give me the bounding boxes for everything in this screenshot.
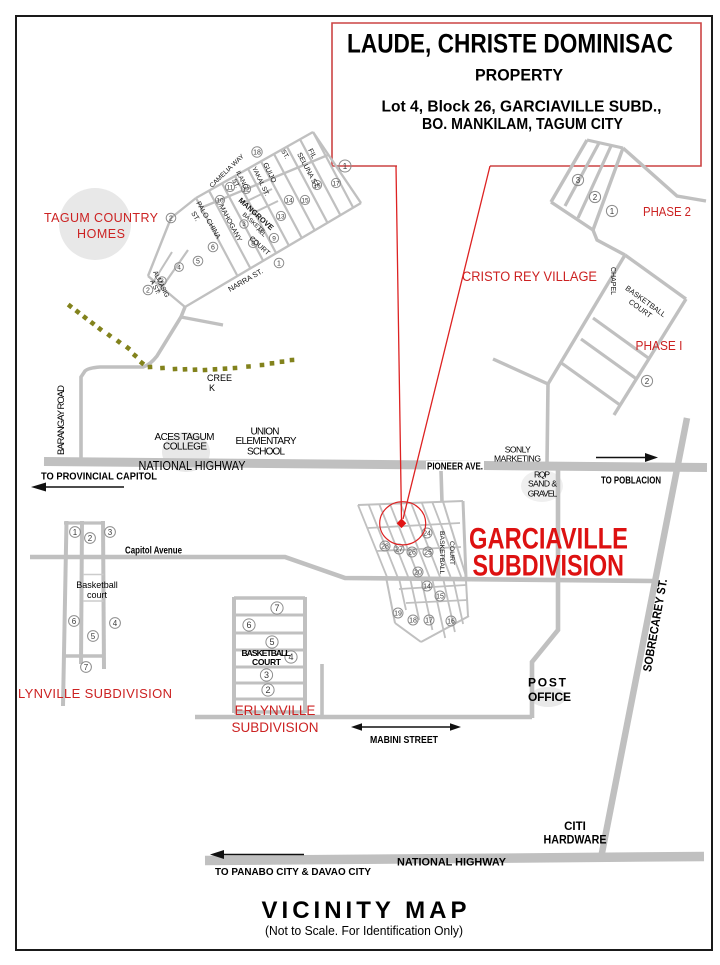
svg-text:7: 7 <box>274 603 279 613</box>
svg-text:19: 19 <box>394 611 402 618</box>
svg-text:5: 5 <box>91 632 96 641</box>
svg-text:HOMES: HOMES <box>77 227 125 241</box>
svg-text:9: 9 <box>272 235 276 242</box>
svg-text:SAND &: SAND & <box>528 479 557 489</box>
svg-text:COURT: COURT <box>252 657 282 667</box>
svg-text:14: 14 <box>285 197 293 204</box>
svg-text:28: 28 <box>381 544 389 551</box>
svg-text:LYNVILLE SUBDIVISION: LYNVILLE SUBDIVISION <box>18 686 172 701</box>
svg-text:BO. MANKILAM, TAGUM CITY: BO. MANKILAM, TAGUM CITY <box>422 116 623 133</box>
svg-text:K: K <box>209 383 215 393</box>
svg-text:Capitol Avenue: Capitol Avenue <box>125 546 182 557</box>
svg-text:15: 15 <box>436 594 444 601</box>
svg-text:SUBDIVISION: SUBDIVISION <box>473 550 625 583</box>
svg-text:15: 15 <box>301 197 309 204</box>
svg-text:TO POBLACION: TO POBLACION <box>601 475 661 487</box>
svg-text:6: 6 <box>72 617 77 626</box>
svg-text:SUBDIVISION: SUBDIVISION <box>231 720 318 735</box>
svg-text:16: 16 <box>447 619 455 626</box>
svg-text:ELEMENTARY: ELEMENTARY <box>236 436 297 447</box>
svg-text:BARANGAY ROAD: BARANGAY ROAD <box>56 385 67 455</box>
svg-text:4: 4 <box>113 619 118 628</box>
svg-text:17: 17 <box>332 180 340 187</box>
svg-text:OFFICE: OFFICE <box>528 690 571 704</box>
svg-text:1: 1 <box>610 207 615 216</box>
svg-text:1: 1 <box>73 528 78 537</box>
svg-text:BASKETBALL: BASKETBALL <box>438 531 445 575</box>
svg-text:3: 3 <box>264 670 269 680</box>
svg-text:Lot 4, Block 26, GARCIAVILLE S: Lot 4, Block 26, GARCIAVILLE SUBD., <box>382 99 662 116</box>
svg-text:5: 5 <box>269 637 274 647</box>
svg-text:2: 2 <box>169 216 173 223</box>
svg-text:MARKETING: MARKETING <box>494 454 541 464</box>
svg-text:TAGUM COUNTRY: TAGUM COUNTRY <box>44 211 159 225</box>
svg-text:ERLYNVILLE: ERLYNVILLE <box>235 703 316 718</box>
svg-text:CREE: CREE <box>207 373 232 383</box>
svg-text:4: 4 <box>177 264 181 271</box>
svg-text:TO PANABO CITY & DAVAO CITY: TO PANABO CITY & DAVAO CITY <box>215 867 371 878</box>
svg-text:SCHOOL: SCHOOL <box>247 447 285 458</box>
svg-text:PHASE I: PHASE I <box>636 339 683 353</box>
svg-text:18: 18 <box>409 618 417 625</box>
svg-text:CRISTO REY VILLAGE: CRISTO REY VILLAGE <box>462 269 597 284</box>
svg-text:CITI: CITI <box>564 821 586 833</box>
svg-text:1: 1 <box>343 162 348 171</box>
svg-text:3: 3 <box>108 528 113 537</box>
svg-text:3: 3 <box>576 176 581 185</box>
svg-text:20: 20 <box>414 570 422 577</box>
svg-text:2: 2 <box>146 288 150 295</box>
svg-text:TO PROVINCIAL CAPITOL: TO PROVINCIAL CAPITOL <box>41 471 158 483</box>
svg-text:2: 2 <box>645 377 650 386</box>
svg-text:2: 2 <box>593 193 598 202</box>
svg-text:17: 17 <box>425 618 433 625</box>
svg-text:2: 2 <box>265 685 270 695</box>
svg-text:PHASE 2: PHASE 2 <box>643 205 691 219</box>
svg-text:2: 2 <box>88 534 93 543</box>
svg-text:PROPERTY: PROPERTY <box>475 67 563 85</box>
svg-text:court: court <box>87 590 108 600</box>
svg-text:HARDWARE: HARDWARE <box>544 835 607 847</box>
svg-text:13: 13 <box>277 213 285 220</box>
svg-text:NATIONAL HIGHWAY: NATIONAL HIGHWAY <box>397 857 507 869</box>
svg-text:LAUDE, CHRISTE DOMINISAC: LAUDE, CHRISTE DOMINISAC <box>347 29 673 59</box>
svg-text:5: 5 <box>196 259 200 266</box>
svg-text:GRAVEL: GRAVEL <box>528 489 558 499</box>
svg-text:6: 6 <box>211 245 215 252</box>
svg-text:25: 25 <box>424 550 432 557</box>
svg-text:VICINITY MAP: VICINITY MAP <box>262 897 467 924</box>
svg-text:Basketball: Basketball <box>76 580 118 590</box>
svg-text:18: 18 <box>253 150 261 157</box>
svg-text:26: 26 <box>408 550 416 557</box>
svg-text:1: 1 <box>277 261 281 268</box>
svg-text:COLLEGE: COLLEGE <box>163 442 207 453</box>
svg-text:14: 14 <box>423 584 431 591</box>
svg-text:COURT: COURT <box>448 541 455 565</box>
svg-text:(Not to Scale. For Identificat: (Not to Scale. For Identification Only) <box>265 924 463 938</box>
svg-text:7: 7 <box>84 663 89 672</box>
svg-text:PIONEER AVE.: PIONEER AVE. <box>427 462 483 473</box>
svg-text:MABINI STREET: MABINI STREET <box>370 735 438 746</box>
svg-text:6: 6 <box>246 620 251 630</box>
svg-text:27: 27 <box>395 547 403 554</box>
svg-text:CHAPEL: CHAPEL <box>609 267 616 295</box>
